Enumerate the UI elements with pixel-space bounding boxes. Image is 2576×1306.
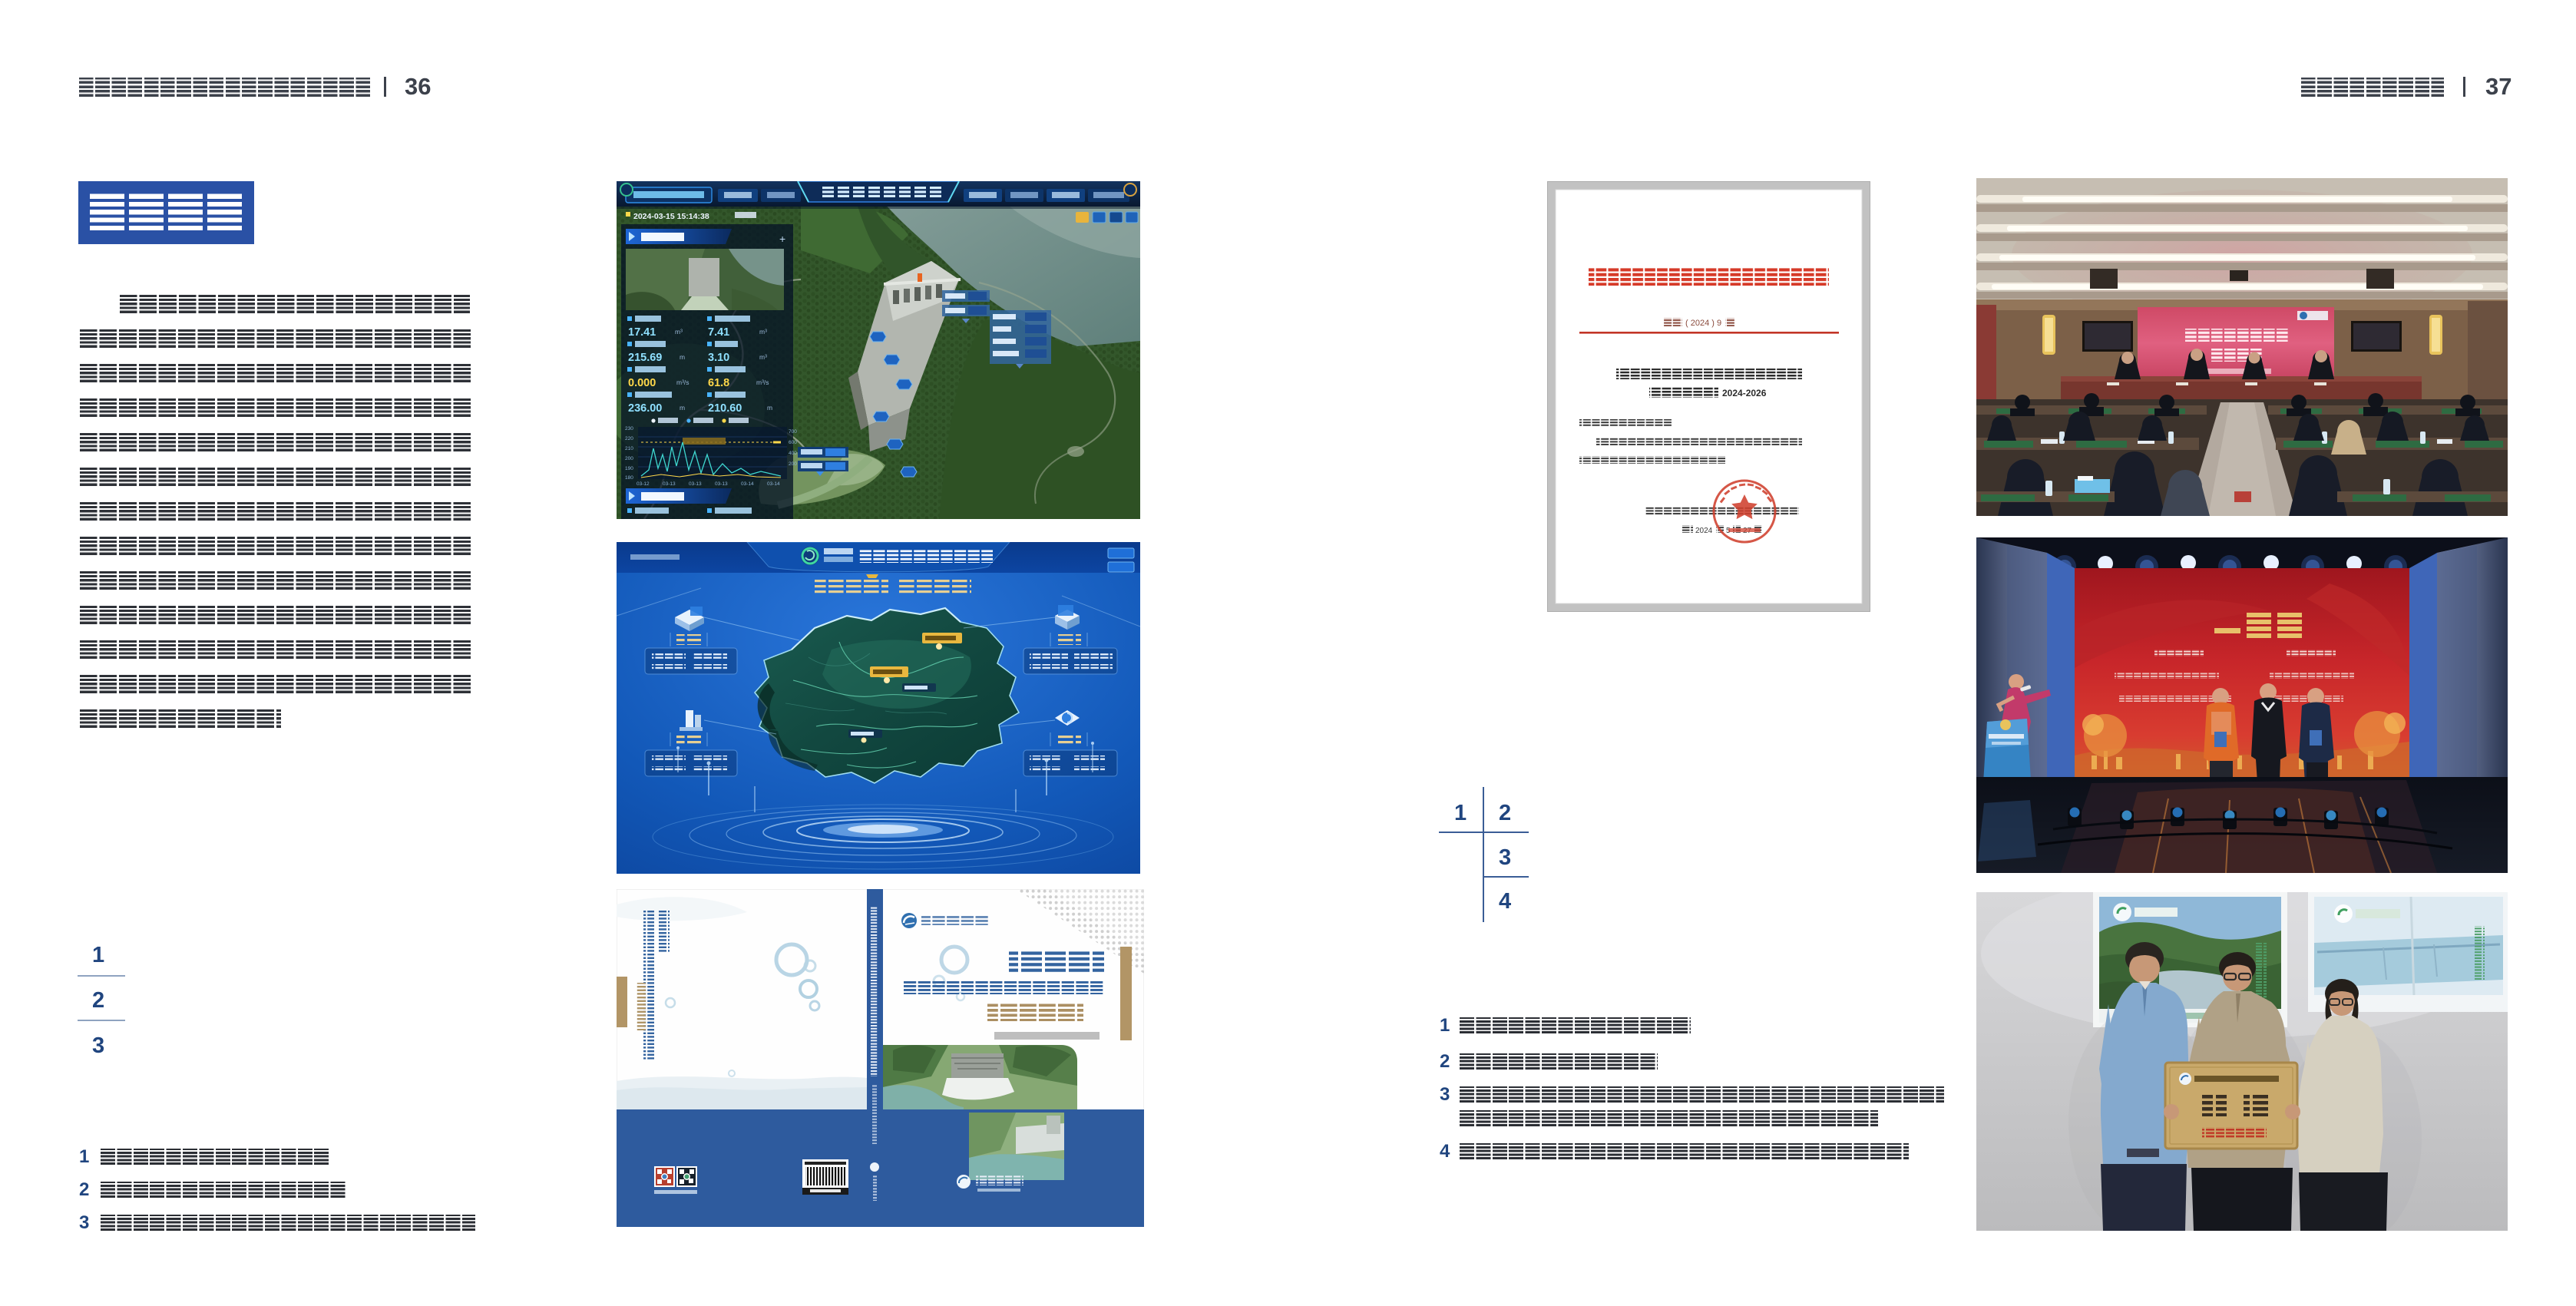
svg-text:180: 180 — [625, 475, 633, 481]
svg-text:03-13: 03-13 — [689, 481, 702, 487]
svg-text:03-13: 03-13 — [663, 481, 676, 487]
svg-text:400: 400 — [789, 451, 797, 456]
svg-text:03-13: 03-13 — [715, 481, 728, 487]
svg-text:m³/s: m³/s — [676, 379, 689, 386]
svg-text:210.60: 210.60 — [708, 402, 742, 415]
svg-text:03-14: 03-14 — [741, 481, 754, 487]
svg-text:2024-2026: 2024-2026 — [1722, 388, 1767, 398]
svg-text:0.000: 0.000 — [628, 377, 656, 389]
svg-text:200: 200 — [789, 461, 797, 467]
svg-text:3.10: 3.10 — [708, 352, 729, 364]
svg-text:m³: m³ — [759, 328, 767, 336]
svg-text:210: 210 — [625, 446, 633, 451]
svg-text:236.00: 236.00 — [628, 402, 662, 415]
svg-text:230: 230 — [625, 426, 633, 431]
svg-text:190: 190 — [625, 466, 633, 471]
svg-text:700: 700 — [789, 429, 797, 435]
svg-text:m: m — [680, 404, 685, 412]
svg-text:2024-03-15 15:14:38: 2024-03-15 15:14:38 — [633, 212, 709, 221]
svg-text:+: + — [779, 233, 785, 245]
svg-text:( 2024 ) 9: ( 2024 ) 9 — [1685, 319, 1721, 328]
svg-text:215.69: 215.69 — [628, 352, 662, 364]
svg-text:220: 220 — [625, 436, 633, 441]
svg-text:m: m — [680, 353, 685, 361]
svg-text:17.41: 17.41 — [628, 326, 656, 339]
svg-text:03-14: 03-14 — [767, 481, 780, 487]
svg-text:m³: m³ — [759, 353, 767, 361]
svg-text:7.41: 7.41 — [708, 326, 729, 339]
svg-text:200: 200 — [625, 456, 633, 461]
svg-text:2024: 2024 — [1695, 527, 1713, 535]
svg-text:m³/s: m³/s — [756, 379, 769, 386]
svg-text:03-12: 03-12 — [637, 481, 650, 487]
svg-text:61.8: 61.8 — [708, 377, 729, 389]
svg-text:m³: m³ — [675, 328, 683, 336]
svg-text:m: m — [767, 404, 772, 412]
svg-text:600: 600 — [789, 440, 797, 445]
